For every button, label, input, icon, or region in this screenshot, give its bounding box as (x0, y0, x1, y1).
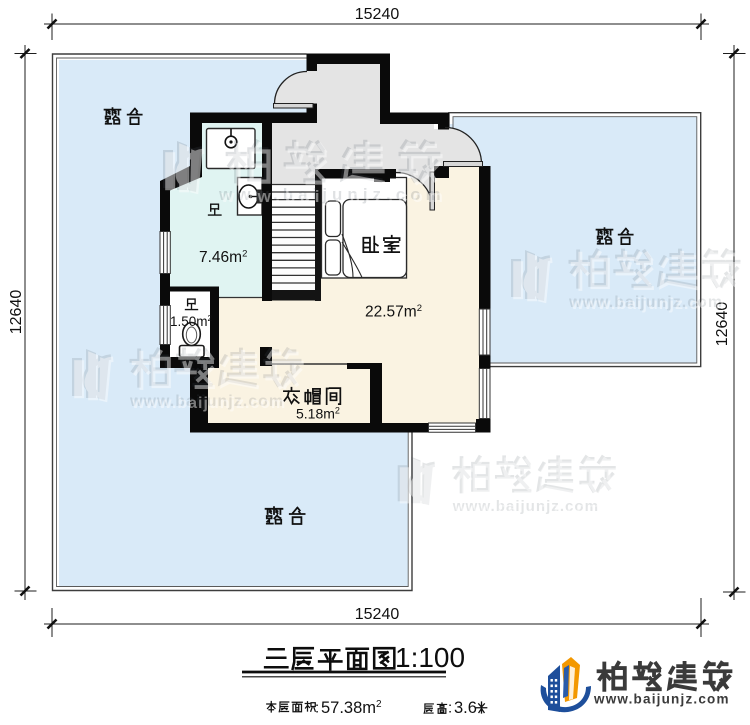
svg-text:www.baijunjz.com: www.baijunjz.com (593, 692, 730, 707)
svg-text:5.18m2: 5.18m2 (296, 406, 340, 422)
svg-text:3.6: 3.6 (454, 699, 477, 717)
svg-text:1:100: 1:100 (395, 642, 465, 673)
svg-text:22.57m2: 22.57m2 (365, 303, 422, 321)
svg-text:7.46m2: 7.46m2 (199, 249, 247, 267)
svg-text::: : (315, 700, 319, 717)
svg-text:15240: 15240 (355, 6, 400, 23)
svg-text::: : (448, 700, 452, 717)
svg-text:12640: 12640 (8, 290, 25, 335)
svg-text:1.50m2: 1.50m2 (170, 313, 213, 329)
svg-text:15240: 15240 (355, 606, 400, 623)
svg-text:57.38m2: 57.38m2 (321, 699, 382, 717)
